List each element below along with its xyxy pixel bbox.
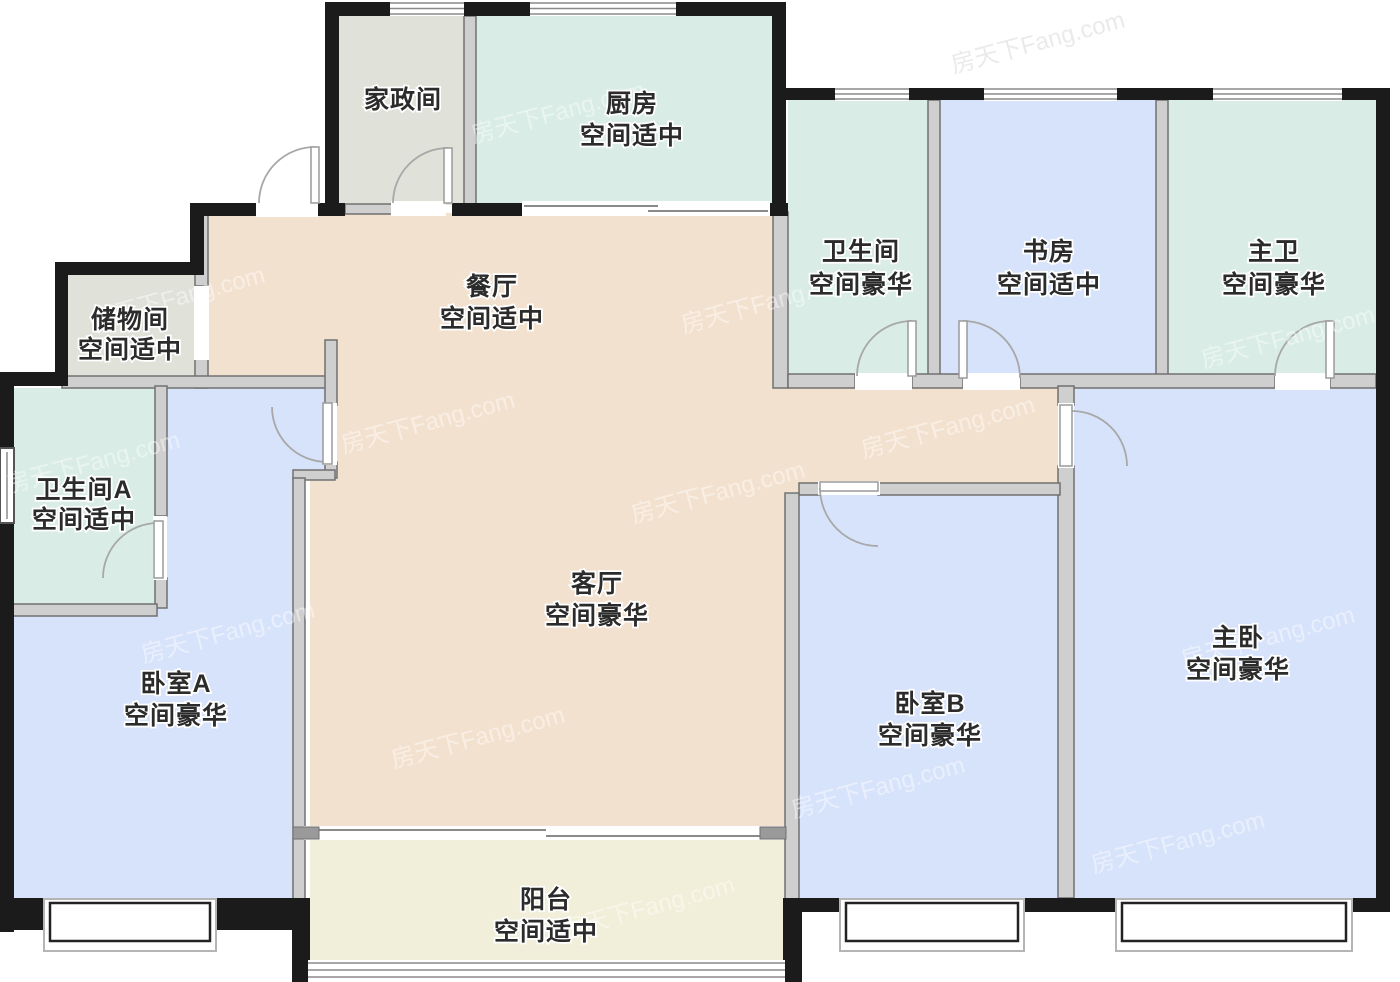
wall — [912, 374, 963, 388]
label-bedroom-b: 卧室B — [894, 689, 965, 718]
label-master-bath-grade: 空间豪华 — [1222, 270, 1326, 299]
label-bathroom-grade: 空间豪华 — [809, 270, 913, 299]
wall — [1058, 386, 1074, 405]
label-bedroom-b-grade: 空间豪华 — [878, 721, 982, 750]
study-door-opening — [963, 373, 1020, 390]
label-kitchen-grade: 空间适中 — [580, 121, 684, 150]
label-study: 书房 — [1023, 237, 1075, 266]
wall — [785, 88, 835, 100]
watermark: 房天下Fang.com — [948, 7, 1128, 79]
wall — [452, 203, 522, 216]
bay-window — [1116, 899, 1352, 951]
wall — [55, 262, 68, 386]
wall — [676, 2, 786, 16]
label-study-grade: 空间适中 — [997, 270, 1101, 299]
bedroom-a-door-leaf — [323, 403, 332, 464]
wall — [1376, 88, 1390, 912]
label-master-bedroom: 主卧 — [1212, 624, 1264, 652]
label-balcony-grade: 空间适中 — [494, 917, 598, 946]
wall — [318, 203, 345, 216]
label-bedroom-a-grade: 空间豪华 — [124, 701, 228, 730]
label-master-bath: 主卫 — [1248, 238, 1300, 266]
label-balcony: 阳台 — [520, 885, 572, 914]
wall — [1156, 100, 1168, 376]
entry-door-leaf — [311, 147, 319, 203]
entry-door-arc — [259, 147, 315, 203]
label-living: 客厅 — [571, 569, 623, 598]
wall — [12, 604, 157, 616]
label-housekeeping: 家政间 — [364, 85, 442, 114]
bay-window — [840, 899, 1024, 951]
master-bath-door-opening — [1275, 373, 1330, 390]
wall — [215, 912, 295, 930]
wall — [928, 100, 940, 376]
wall — [785, 493, 799, 905]
kitchen-opening — [522, 201, 770, 216]
wall — [62, 376, 335, 388]
label-dining: 餐厅 — [466, 273, 518, 301]
wall — [1117, 88, 1213, 100]
label-bathroom: 卫生间 — [822, 238, 900, 266]
wall — [325, 340, 337, 405]
wall — [345, 204, 393, 214]
wall — [878, 483, 1060, 495]
wall — [909, 88, 984, 100]
label-living-grade: 空间豪华 — [545, 601, 649, 630]
bathroom-door-leaf — [908, 321, 916, 376]
wall — [293, 478, 305, 912]
wall — [799, 483, 820, 495]
wall — [1058, 466, 1074, 898]
wall — [1330, 374, 1376, 388]
balcony-slide-stub — [293, 827, 319, 839]
label-bathroom-a-grade: 空间适中 — [32, 505, 136, 534]
label-kitchen: 厨房 — [606, 89, 658, 118]
label-dining-grade: 空间适中 — [440, 304, 544, 333]
label-bathroom-a: 卫生间A — [35, 476, 132, 504]
housekeeping-door-opening — [391, 201, 446, 216]
wall — [325, 2, 339, 216]
master-bedroom-door-leaf — [1060, 405, 1072, 466]
wall — [198, 203, 258, 216]
wall — [788, 374, 855, 388]
bay-window — [44, 899, 216, 951]
wall — [464, 16, 476, 206]
label-storage-grade: 空间适中 — [78, 335, 182, 364]
housekeeping-door-leaf — [444, 148, 452, 203]
bathroom-a-door-leaf — [154, 521, 163, 578]
wall — [55, 262, 204, 275]
wall — [292, 898, 310, 982]
entry-door-opening — [256, 201, 318, 217]
balcony-slide-stub — [760, 827, 786, 839]
floor-plan: 房天下Fang.com 房天下Fang.com 房天下Fang.com 房天下F… — [0, 0, 1400, 982]
label-master-bedroom-grade: 空间豪华 — [1186, 655, 1290, 684]
wall — [0, 912, 46, 930]
wall — [772, 2, 786, 212]
wall — [464, 2, 530, 16]
study-door-leaf — [959, 321, 967, 378]
bathroom-door-opening — [855, 373, 912, 390]
label-storage: 储物间 — [91, 305, 169, 334]
label-bedroom-a: 卧室A — [140, 669, 211, 698]
bedroom-b-door-leaf — [820, 482, 878, 491]
balcony-slide-opening — [304, 826, 784, 840]
